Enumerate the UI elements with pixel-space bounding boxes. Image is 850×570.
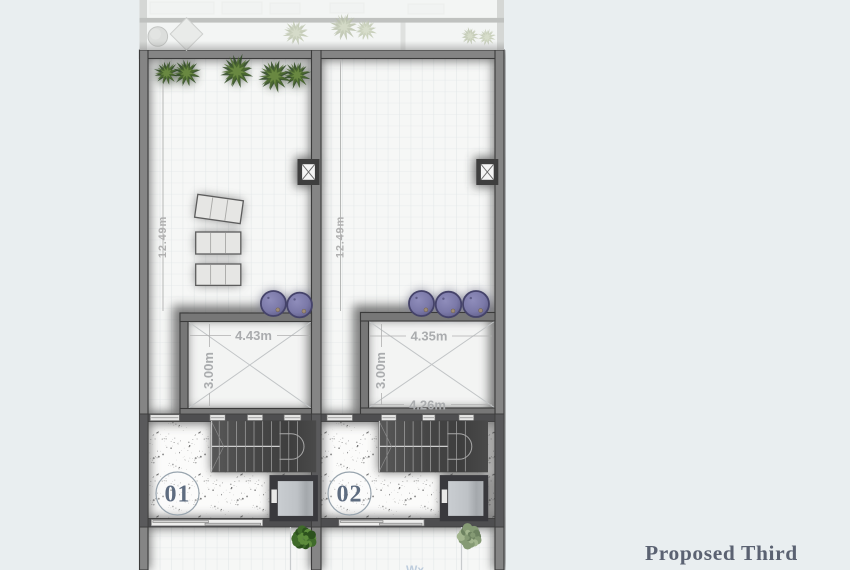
svg-text:02: 02 [337, 482, 363, 508]
svg-text:Proposed Third: Proposed Third [645, 541, 798, 565]
svg-text:3.00m: 3.00m [373, 352, 388, 389]
svg-text:4.35m: 4.35m [411, 329, 448, 344]
svg-text:4.26m: 4.26m [409, 398, 446, 413]
svg-text:Wх: Wх [406, 563, 424, 570]
svg-text:4.43m: 4.43m [235, 328, 272, 343]
svg-text:01: 01 [165, 482, 191, 508]
svg-text:3.00m: 3.00m [201, 352, 216, 389]
svg-text:12.49m: 12.49m [334, 216, 346, 258]
svg-text:12.49m: 12.49m [157, 216, 169, 258]
